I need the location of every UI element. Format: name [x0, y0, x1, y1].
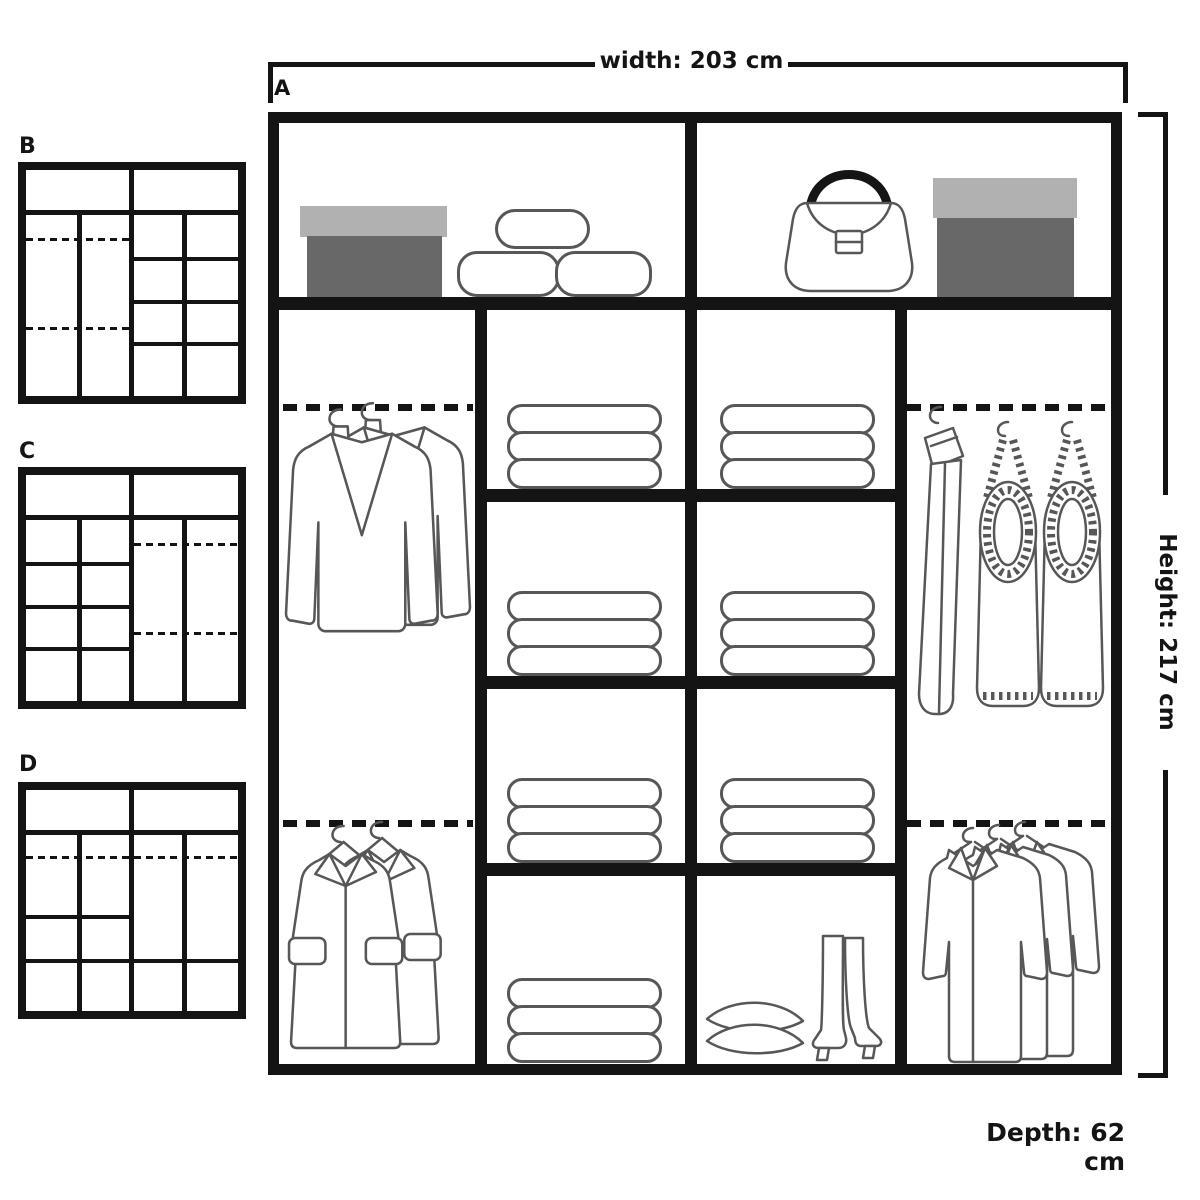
width-label: width: 203 cm: [595, 48, 788, 74]
folded-clothes-icon: [507, 978, 662, 1063]
duvet-icon: [457, 251, 560, 297]
width-dim-line-left: [268, 62, 595, 67]
thumb-c-label: C: [19, 439, 35, 464]
folded-clothes-icon: [720, 404, 875, 489]
boots-icon: [807, 934, 883, 1064]
width-dim-tick-right: [1123, 62, 1128, 103]
height-dim-line-bottom: [1163, 770, 1168, 1078]
layout-thumbnail-d: [18, 782, 246, 1019]
center-partition: [685, 123, 697, 1064]
shelf-board: [475, 489, 907, 502]
storage-box-lid-icon: [933, 178, 1077, 218]
folded-clothes-icon: [720, 778, 875, 863]
wardrobe-layout-diagram: { "annotations": { "main_label": "A", "w…: [0, 0, 1200, 1200]
thumb-b-label: B: [19, 134, 36, 159]
depth-label: Depth: 62 cm: [940, 1118, 1125, 1176]
handbag-icon: [779, 147, 919, 295]
width-dim-tick-left: [268, 62, 273, 103]
hanging-shirts-icon: [911, 820, 1107, 1068]
width-dim-line-right: [788, 62, 1128, 67]
hanging-knitwear-icon: [909, 404, 1109, 744]
folded-clothes-icon: [507, 591, 662, 676]
height-dim-cap-bottom: [1138, 1073, 1168, 1078]
shelf-board: [475, 676, 907, 689]
shelf-board: [475, 863, 907, 876]
folded-clothes-icon: [507, 778, 662, 863]
wardrobe-main-diagram: [268, 112, 1122, 1075]
duvet-icon: [555, 251, 652, 297]
duvet-icon: [495, 209, 590, 249]
folded-clothes-icon: [507, 404, 662, 489]
draped-garment-icon: [919, 407, 963, 714]
storage-box-icon: [937, 218, 1074, 297]
storage-box-icon: [307, 236, 442, 297]
height-label: Height: 217 cm: [1150, 507, 1180, 757]
pillows-icon: [703, 995, 807, 1065]
thumb-d-label: D: [19, 752, 37, 777]
hanging-jackets-icon: [283, 400, 473, 685]
main-diagram-label: A: [274, 76, 290, 100]
layout-thumbnail-b: [18, 162, 246, 404]
height-dim-line-top: [1163, 112, 1168, 495]
layout-thumbnail-c: [18, 467, 246, 709]
storage-box-lid-icon: [300, 206, 447, 237]
hanging-coats-icon: [287, 818, 471, 1064]
folded-clothes-icon: [720, 591, 875, 676]
